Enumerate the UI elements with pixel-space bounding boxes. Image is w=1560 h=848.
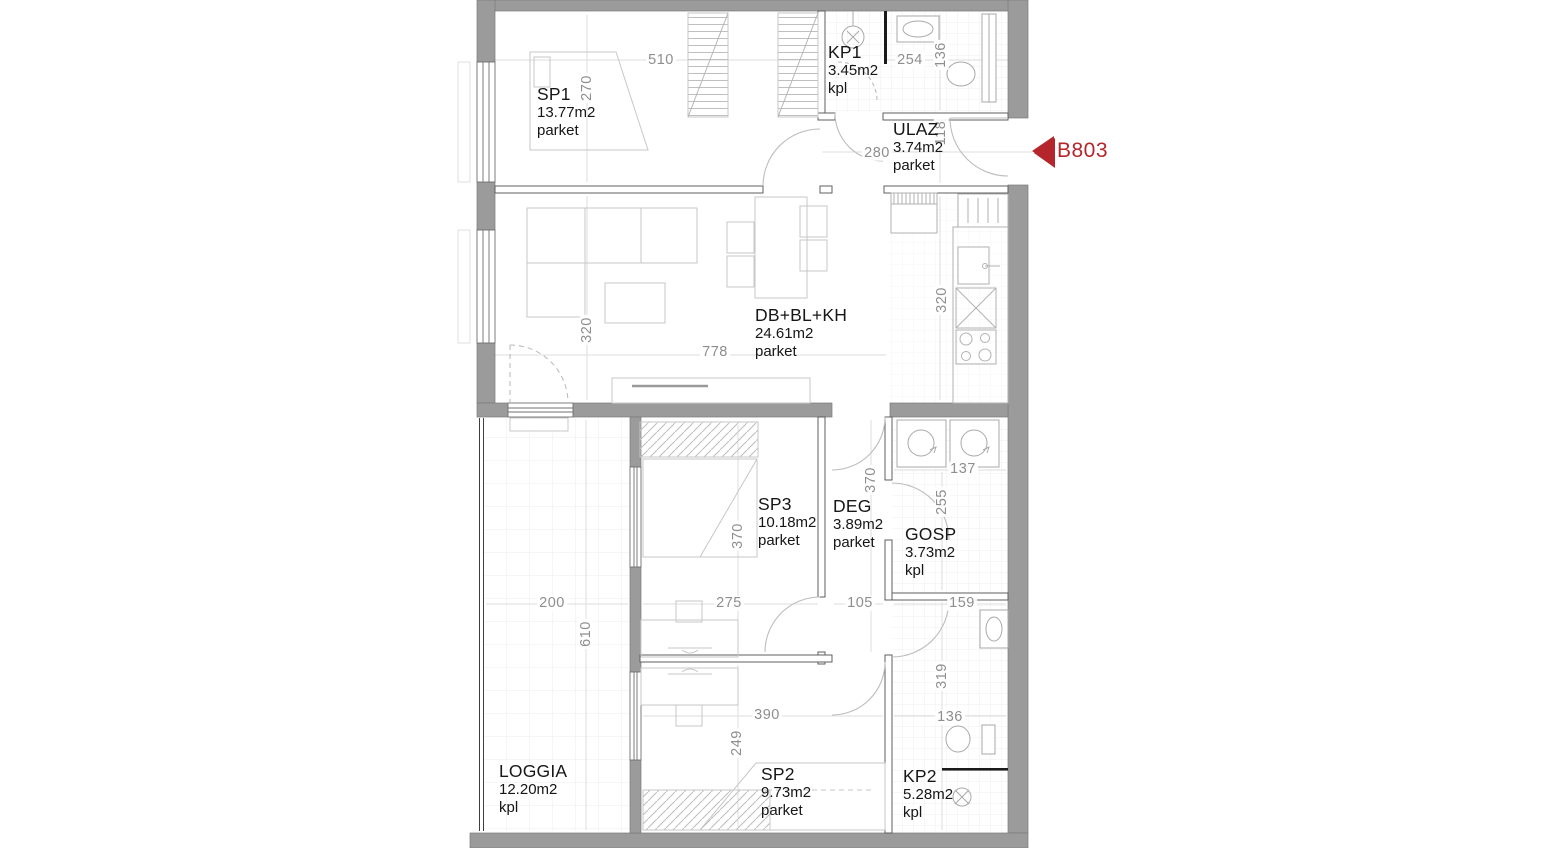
- room-area: 3.74m2: [893, 139, 943, 156]
- dining-table: [755, 197, 807, 298]
- dimension: 390: [752, 708, 782, 723]
- room-label-sp3: SP3 10.18m2 parket: [758, 494, 816, 549]
- room-area: 13.77m2: [537, 104, 595, 121]
- dimension: 159: [947, 596, 977, 611]
- room-area: 3.45m2: [828, 62, 878, 79]
- room-floor: parket: [893, 157, 943, 174]
- dimension: 275: [714, 596, 744, 611]
- room-area: 24.61m2: [755, 325, 847, 342]
- room-floor: parket: [833, 534, 883, 551]
- room-floor: kpl: [905, 562, 956, 579]
- coffee-table: [605, 283, 665, 323]
- room-name: KP2: [903, 766, 953, 786]
- room-label-kp1: KP1 3.45m2 kpl: [828, 42, 878, 97]
- dimension: 254: [895, 53, 925, 68]
- room-floor: kpl: [499, 799, 567, 816]
- room-floor: parket: [537, 122, 595, 139]
- tv-stand: [612, 378, 810, 403]
- room-area: 5.28m2: [903, 786, 953, 803]
- room-floor: parket: [761, 802, 811, 819]
- room-name: SP2: [761, 764, 811, 784]
- room-label-sp1: SP1 13.77m2 parket: [537, 84, 595, 139]
- wardrobe-sp3: [640, 422, 758, 457]
- floorplan-page: SP1 13.77m2 parket KP1 3.45m2 kpl ULAZ 3…: [0, 0, 1560, 848]
- washing-machine: [897, 420, 946, 467]
- room-name: SP1: [537, 84, 595, 104]
- dimension: 137: [948, 462, 978, 477]
- loggia-railing: [480, 418, 484, 831]
- dimension: 610: [579, 619, 594, 649]
- room-floor: kpl: [903, 804, 953, 821]
- dining-chair: [800, 240, 827, 271]
- room-label-deg: DEG 3.89m2 parket: [833, 496, 883, 551]
- room-name: LOGGIA: [499, 761, 567, 781]
- room-floor: parket: [758, 532, 816, 549]
- room-floor: kpl: [828, 80, 878, 97]
- dimension: 200: [537, 596, 567, 611]
- room-name: GOSP: [905, 524, 956, 544]
- toilet-kp2: [946, 726, 970, 752]
- room-label-kp2: KP2 5.28m2 kpl: [903, 766, 953, 821]
- room-name: KP1: [828, 42, 878, 62]
- room-name: DEG: [833, 496, 883, 516]
- dimension: 136: [935, 710, 965, 725]
- room-area: 9.73m2: [761, 784, 811, 801]
- room-name: ULAZ: [893, 119, 943, 139]
- room-name: DB+BL+KH: [755, 305, 847, 325]
- dimension: 778: [700, 345, 730, 360]
- dining-chair: [800, 206, 827, 237]
- dimension: 105: [845, 596, 875, 611]
- dimension: 255: [935, 487, 950, 517]
- dimension: 280: [862, 146, 892, 161]
- dimension: 320: [580, 315, 595, 345]
- kitchen-cabinet: [958, 194, 1008, 227]
- dimension: 320: [935, 285, 950, 315]
- room-label-ulaz: ULAZ 3.74m2 parket: [893, 119, 943, 174]
- pillow-sp1: [534, 57, 550, 87]
- room-area: 3.73m2: [905, 544, 956, 561]
- room-label-loggia: LOGGIA 12.20m2 kpl: [499, 761, 567, 816]
- dimension: 370: [864, 465, 879, 495]
- dimension: 510: [646, 53, 676, 68]
- room-label-sp2: SP2 9.73m2 parket: [761, 764, 811, 819]
- kitchen-sink: [958, 247, 989, 284]
- desk: [641, 620, 738, 657]
- dimension: 370: [731, 521, 746, 551]
- room-label-gosp: GOSP 3.73m2 kpl: [905, 524, 956, 579]
- left-arrow-icon: [1032, 136, 1054, 166]
- unit-label: B803: [1057, 139, 1108, 163]
- dimension: 136: [934, 40, 949, 70]
- dining-chair: [727, 256, 754, 287]
- room-area: 3.89m2: [833, 516, 883, 533]
- room-area: 12.20m2: [499, 781, 567, 798]
- bathroom-sink-kp2: [980, 610, 1008, 648]
- room-floor: parket: [755, 343, 847, 360]
- room-area: 10.18m2: [758, 514, 816, 531]
- room-name: SP3: [758, 494, 816, 514]
- dimension: 249: [730, 728, 745, 758]
- dimension: 319: [935, 661, 950, 691]
- room-label-db: DB+BL+KH 24.61m2 parket: [755, 305, 847, 360]
- dining-chair: [727, 222, 754, 253]
- toilet-kp1: [947, 62, 975, 86]
- wardrobe-sp2: [643, 790, 770, 830]
- unit-marker: B803: [1032, 136, 1108, 166]
